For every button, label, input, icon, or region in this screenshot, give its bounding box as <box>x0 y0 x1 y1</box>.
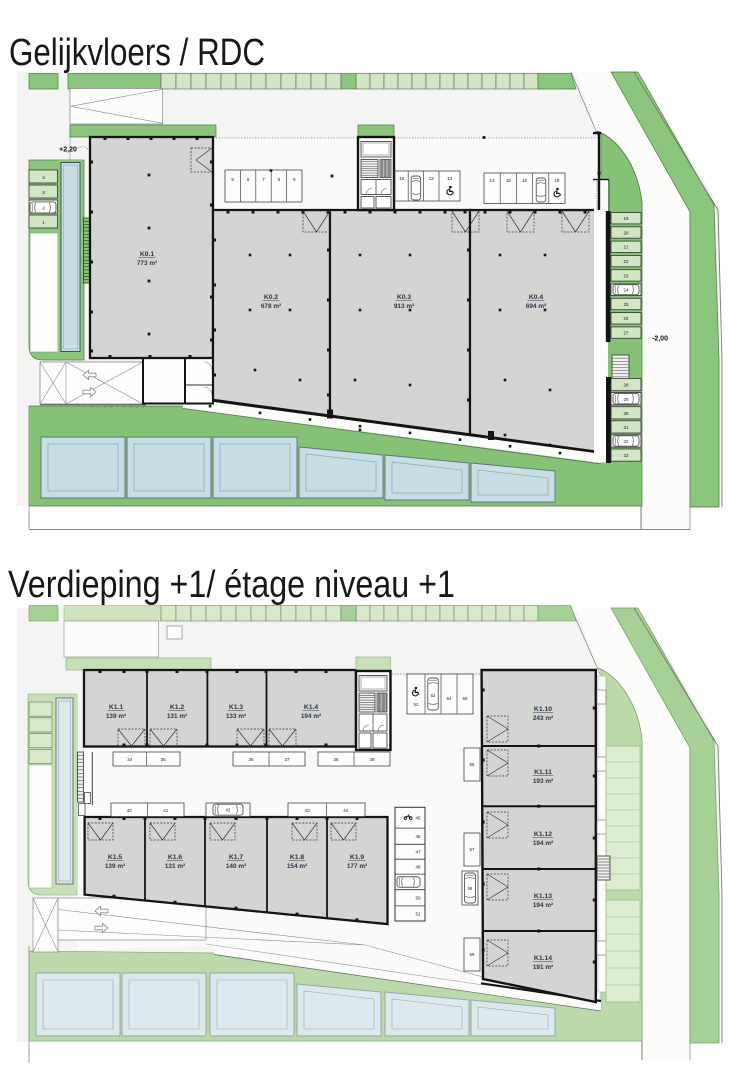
svg-text:K1.14: K1.14 <box>534 955 552 962</box>
svg-text:K1.4: K1.4 <box>304 704 319 711</box>
svg-text:50: 50 <box>415 896 421 901</box>
svg-text:59: 59 <box>470 952 475 957</box>
svg-text:34: 34 <box>127 757 132 762</box>
svg-text:139 m²: 139 m² <box>105 863 125 870</box>
svg-text:+2,20: +2,20 <box>59 147 77 154</box>
svg-text:K1.9: K1.9 <box>350 854 365 861</box>
svg-text:36: 36 <box>249 757 254 762</box>
svg-text:23: 23 <box>624 273 629 278</box>
svg-text:15: 15 <box>506 178 512 183</box>
svg-text:18: 18 <box>554 178 560 183</box>
svg-text:3: 3 <box>42 190 45 195</box>
svg-text:42: 42 <box>226 808 231 813</box>
svg-text:9: 9 <box>293 177 296 182</box>
svg-text:32: 32 <box>624 439 629 444</box>
svg-text:12: 12 <box>429 176 435 181</box>
svg-text:46: 46 <box>415 834 421 839</box>
svg-text:47: 47 <box>415 850 421 855</box>
svg-text:28: 28 <box>624 383 629 388</box>
svg-text:27: 27 <box>624 331 629 336</box>
svg-text:193 m²: 193 m² <box>533 778 553 785</box>
svg-text:133 m²: 133 m² <box>226 713 246 720</box>
svg-text:K1.7: K1.7 <box>229 854 244 861</box>
svg-text:140 m²: 140 m² <box>226 863 246 870</box>
svg-text:33: 33 <box>624 453 629 458</box>
svg-text:K0.2: K0.2 <box>264 294 279 301</box>
svg-text:14: 14 <box>490 178 496 183</box>
svg-text:8: 8 <box>278 177 281 182</box>
svg-text:43: 43 <box>305 808 310 813</box>
svg-text:243 m²: 243 m² <box>533 715 553 722</box>
svg-text:56: 56 <box>470 762 475 767</box>
svg-text:38: 38 <box>334 757 339 762</box>
svg-text:K1.5: K1.5 <box>108 854 123 861</box>
svg-text:154 m²: 154 m² <box>287 863 307 870</box>
svg-text:K1.3: K1.3 <box>229 704 244 711</box>
svg-text:40: 40 <box>127 808 132 813</box>
svg-text:131 m²: 131 m² <box>165 863 185 870</box>
svg-text:-2,00: -2,00 <box>652 336 668 343</box>
svg-text:177 m²: 177 m² <box>347 863 367 870</box>
svg-text:26: 26 <box>624 316 629 321</box>
svg-text:44: 44 <box>343 808 348 813</box>
svg-text:K1.11: K1.11 <box>534 769 552 776</box>
svg-text:20: 20 <box>624 230 629 235</box>
svg-text:57: 57 <box>470 847 475 852</box>
svg-text:Verdieping +1/ étage niveau +1: Verdieping +1/ étage niveau +1 <box>8 564 455 606</box>
svg-text:52: 52 <box>414 702 419 707</box>
svg-text:1: 1 <box>42 220 45 225</box>
svg-text:13: 13 <box>447 176 453 181</box>
svg-text:K1.8: K1.8 <box>290 854 305 861</box>
svg-text:K1.6: K1.6 <box>168 854 183 861</box>
svg-text:39: 39 <box>370 757 375 762</box>
svg-text:55: 55 <box>463 696 468 701</box>
svg-text:194 m²: 194 m² <box>533 840 553 847</box>
svg-text:K1.1: K1.1 <box>109 704 124 711</box>
svg-text:35: 35 <box>161 757 166 762</box>
svg-text:41: 41 <box>163 808 168 813</box>
svg-text:25: 25 <box>624 302 629 307</box>
svg-text:16: 16 <box>522 178 528 183</box>
svg-text:6: 6 <box>247 177 250 182</box>
svg-text:2: 2 <box>42 205 45 210</box>
svg-text:5: 5 <box>231 177 234 182</box>
svg-text:10: 10 <box>399 176 405 181</box>
svg-text:131 m²: 131 m² <box>167 713 187 720</box>
svg-text:21: 21 <box>624 245 629 250</box>
svg-text:29: 29 <box>624 397 629 402</box>
svg-text:48: 48 <box>415 864 421 869</box>
svg-text:51: 51 <box>415 911 421 916</box>
svg-text:K1.13: K1.13 <box>534 893 552 900</box>
svg-text:7: 7 <box>262 177 265 182</box>
svg-text:773 m²: 773 m² <box>137 260 157 267</box>
svg-text:58: 58 <box>468 886 473 891</box>
svg-text:194 m²: 194 m² <box>301 713 321 720</box>
svg-text:37: 37 <box>285 757 290 762</box>
svg-text:K0.3: K0.3 <box>397 294 412 301</box>
svg-text:K1.10: K1.10 <box>534 706 552 713</box>
svg-text:K1.2: K1.2 <box>170 704 185 711</box>
svg-text:19: 19 <box>624 216 629 221</box>
svg-text:K1.12: K1.12 <box>534 831 552 838</box>
svg-text:22: 22 <box>624 259 629 264</box>
svg-text:139 m²: 139 m² <box>106 713 126 720</box>
svg-text:194 m²: 194 m² <box>533 902 553 909</box>
svg-text:K0.4: K0.4 <box>529 294 544 301</box>
svg-text:54: 54 <box>447 696 452 701</box>
svg-text:31: 31 <box>624 425 629 430</box>
svg-text:45: 45 <box>415 816 421 821</box>
svg-text:24: 24 <box>624 288 629 293</box>
svg-text:913 m²: 913 m² <box>394 303 414 310</box>
svg-text:53: 53 <box>431 693 436 698</box>
svg-text:K0.1: K0.1 <box>140 251 155 258</box>
svg-text:Gelijkvloers / RDC: Gelijkvloers / RDC <box>9 32 265 74</box>
svg-text:191 m²: 191 m² <box>533 964 553 971</box>
svg-text:30: 30 <box>624 411 629 416</box>
svg-text:694 m²: 694 m² <box>526 303 546 310</box>
svg-text:4: 4 <box>42 175 45 180</box>
svg-text:678 m²: 678 m² <box>261 303 281 310</box>
